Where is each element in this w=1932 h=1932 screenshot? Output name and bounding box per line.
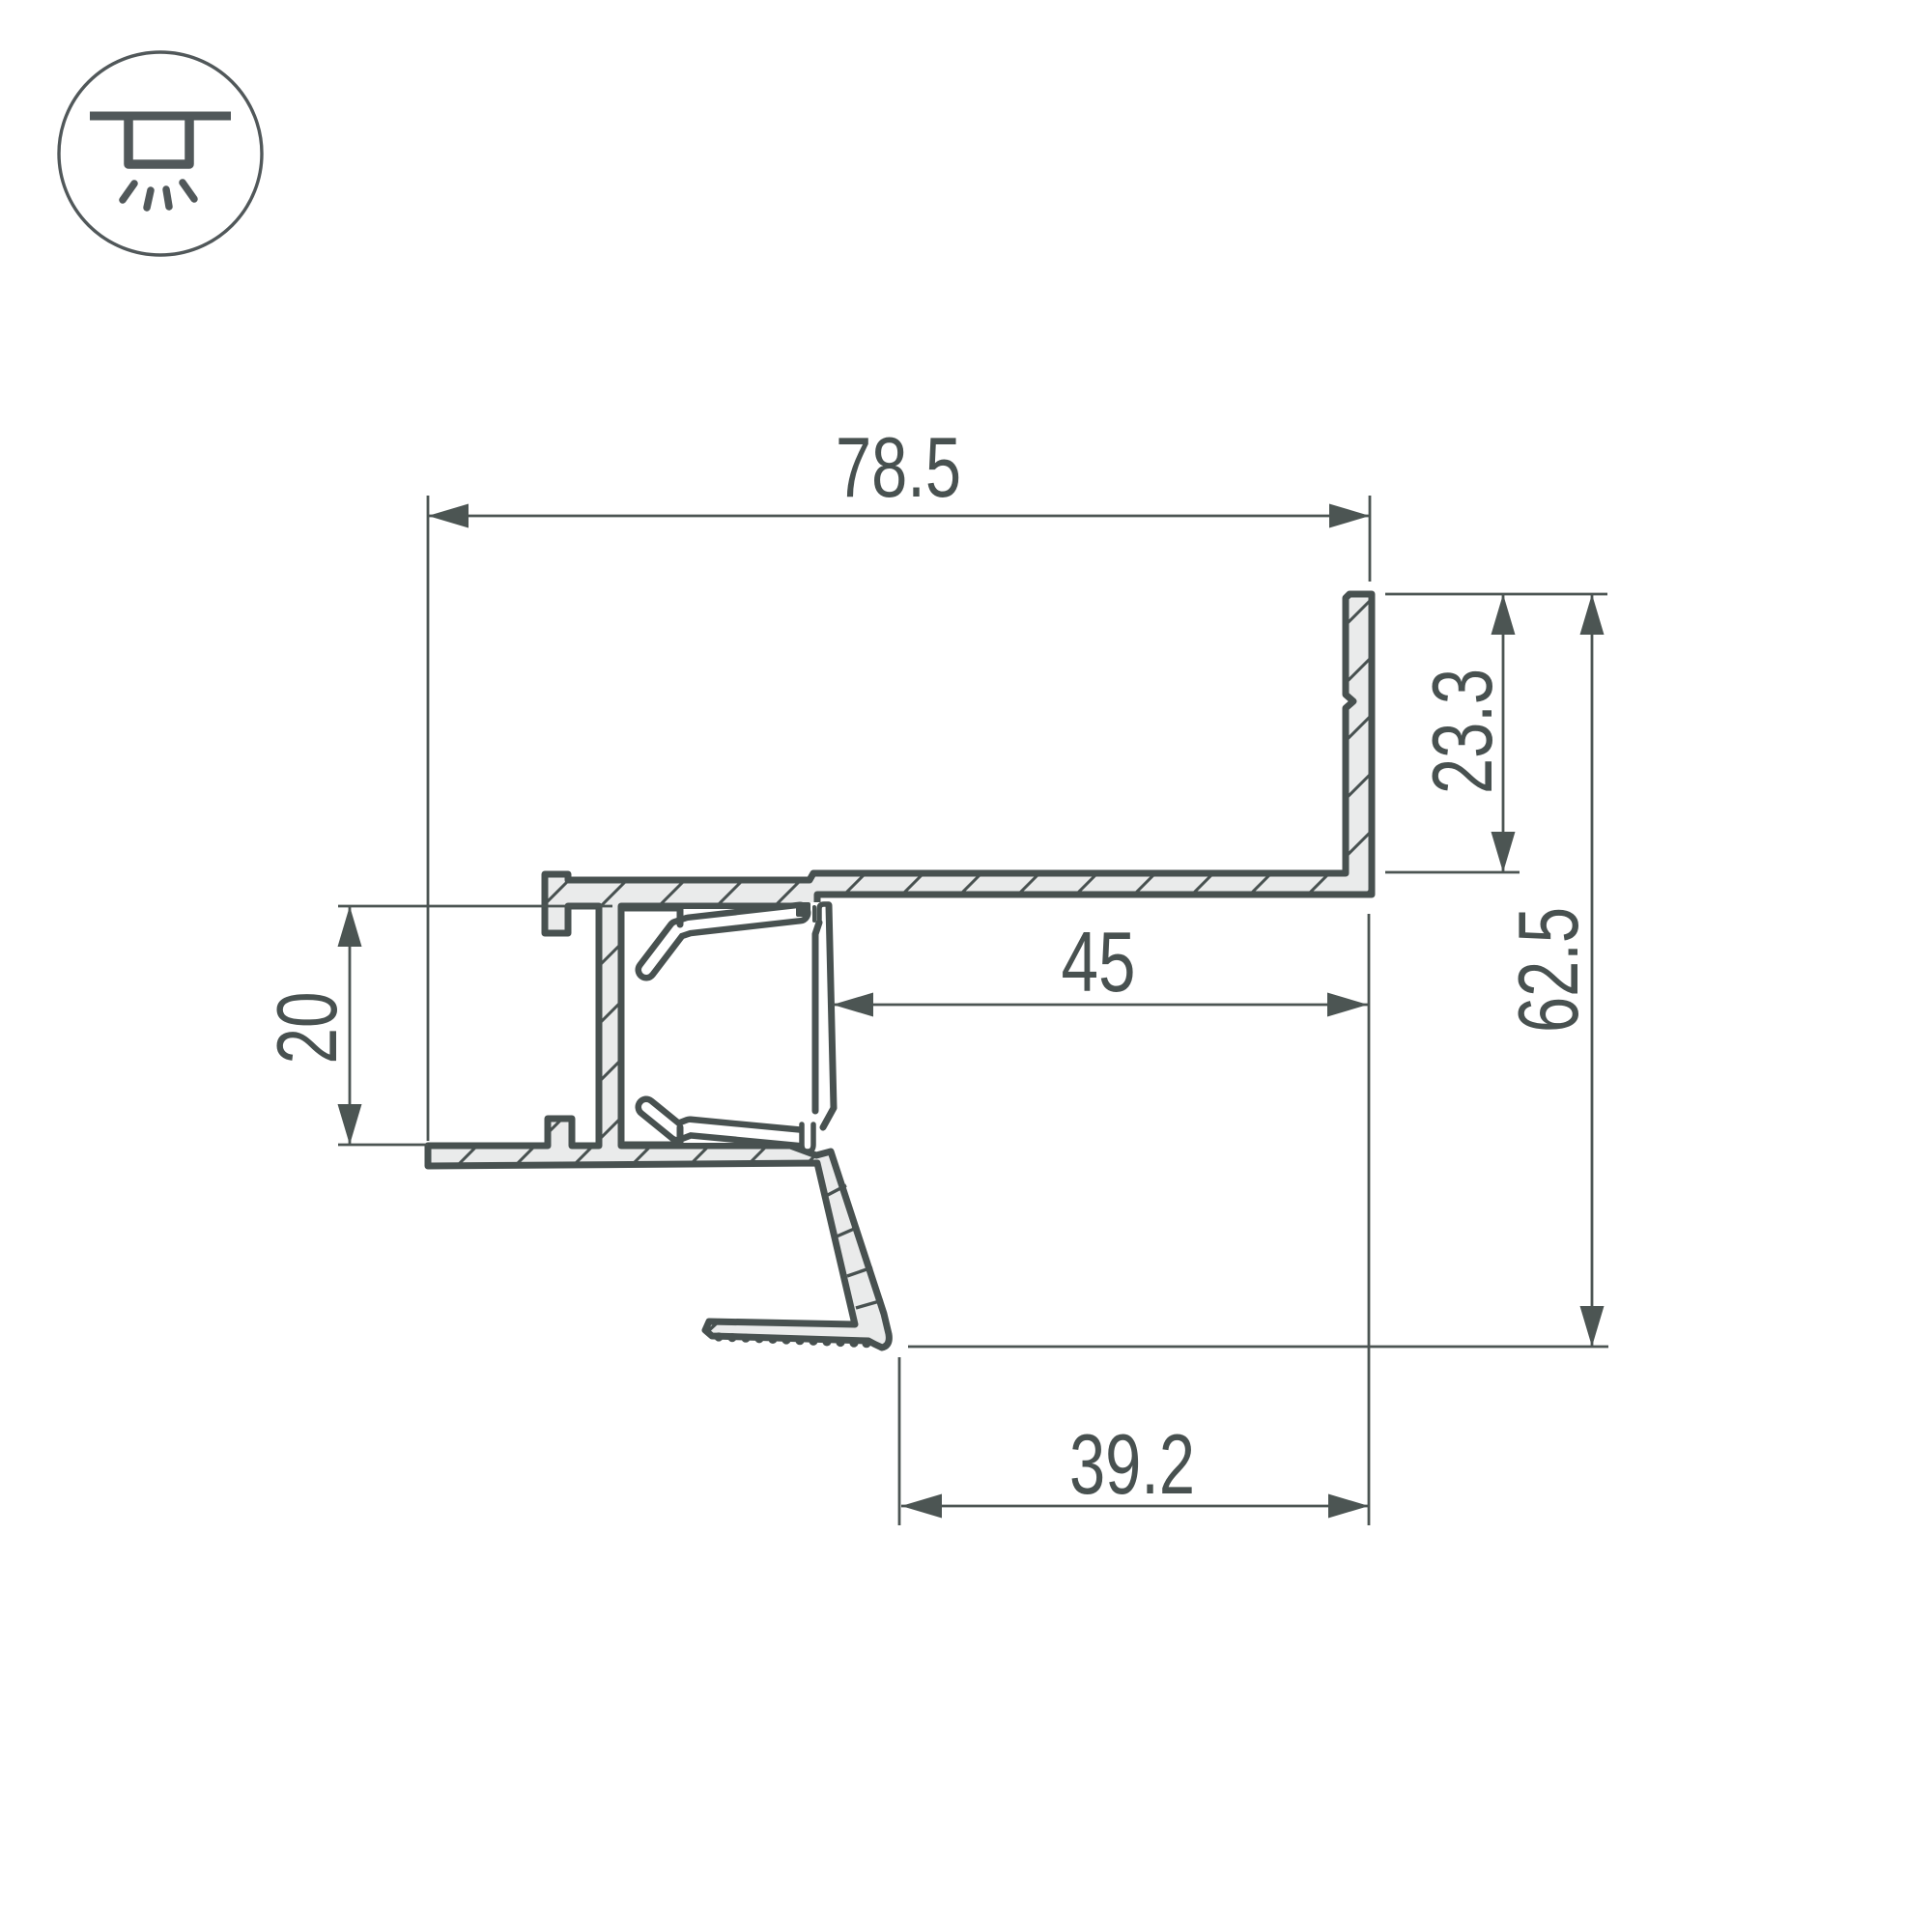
svg-text:45: 45 [1062, 914, 1136, 1009]
svg-text:23.3: 23.3 [1414, 668, 1510, 794]
svg-text:62.5: 62.5 [1500, 907, 1596, 1033]
svg-text:39.2: 39.2 [1069, 1416, 1195, 1512]
svg-text:78.5: 78.5 [836, 419, 961, 515]
svg-text:20: 20 [259, 992, 355, 1065]
